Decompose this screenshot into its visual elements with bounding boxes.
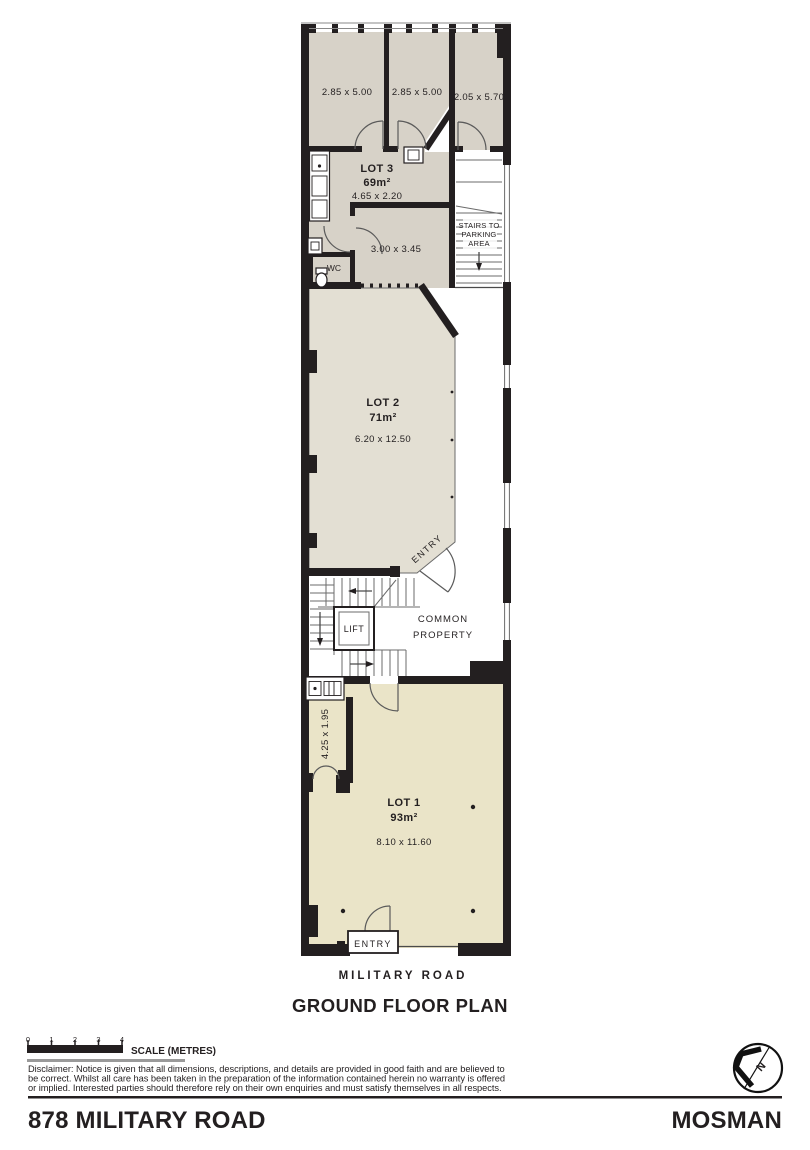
disclaimer-line-3: or implied. Interested parties should th… — [28, 1083, 502, 1093]
disclaimer-line-2: be correct. Whilst all care has been tak… — [28, 1074, 505, 1084]
room3-dim-label: 2.05 x 5.70 — [454, 92, 504, 103]
north-compass-icon: N — [734, 1044, 782, 1092]
lot3-name-label: LOT 3 — [360, 163, 393, 175]
stairs-label-3: AREA — [468, 239, 490, 248]
scale-bar-rule — [27, 1045, 123, 1053]
stove-fixture — [306, 677, 344, 700]
scale-bar: 0 1 2 3 4 SCALE (METRES) — [26, 1035, 216, 1062]
toilet-fixture — [316, 268, 327, 287]
lot1-dim-label: 8.10 x 11.60 — [376, 837, 431, 848]
kitchen-fixture — [310, 151, 330, 221]
scale-underline — [27, 1059, 185, 1062]
footer-address: 878 MILITARY ROAD — [28, 1107, 266, 1134]
disclaimer-line-1: Disclaimer: Notice is given that all dim… — [28, 1064, 505, 1074]
disclaimer: Disclaimer: Notice is given that all dim… — [28, 1064, 505, 1093]
common-property-label-1: COMMON — [418, 614, 468, 625]
plan-title: GROUND FLOOR PLAN — [292, 995, 508, 1016]
lot2-dim-label: 6.20 x 12.50 — [355, 434, 411, 445]
footer-rule — [28, 1096, 782, 1099]
floor-plan-page: 2.85 x 5.00 2.85 x 5.00 2.05 x 5.70 LOT … — [0, 0, 810, 1150]
lot1-corridor-dim-label: 4.25 x 1.95 — [320, 709, 331, 759]
lot3-room-dim-label: 3.00 x 3.45 — [371, 244, 421, 255]
stairs-label-2: PARKING — [461, 230, 496, 239]
wc-label: WC — [327, 263, 341, 273]
room2-dim-label: 2.85 x 5.00 — [392, 87, 442, 98]
lot2-area-label: 71m² — [369, 412, 396, 424]
lot1-area-label: 93m² — [390, 812, 417, 824]
lot1-door-opening — [370, 676, 398, 684]
floor-plan-drawing: 2.85 x 5.00 2.85 x 5.00 2.05 x 5.70 LOT … — [0, 0, 810, 1150]
duct-fixture — [404, 147, 423, 163]
footer: 878 MILITARY ROAD MOSMAN — [28, 1096, 782, 1134]
lot1-entry-label: ENTRY — [354, 939, 392, 949]
room1-dim-label: 2.85 x 5.00 — [322, 87, 372, 98]
compass-north-label: N — [754, 1060, 768, 1074]
lot3-area-label: 69m² — [363, 177, 390, 189]
meter-box-fixture — [308, 238, 322, 254]
street-label: MILITARY ROAD — [339, 970, 468, 982]
lift-label: LIFT — [344, 624, 365, 634]
lot3-dim-label: 4.65 x 2.20 — [352, 191, 402, 202]
lot2-floor — [309, 288, 455, 573]
common-property-label-2: PROPERTY — [413, 630, 473, 641]
footer-suburb: MOSMAN — [671, 1107, 782, 1134]
lot1-name-label: LOT 1 — [387, 797, 420, 809]
stairs-label-1: STAIRS TO — [458, 221, 499, 230]
room-fills — [309, 32, 503, 948]
lot2-name-label: LOT 2 — [366, 397, 399, 409]
scale-bar-label: SCALE (METRES) — [131, 1046, 216, 1057]
